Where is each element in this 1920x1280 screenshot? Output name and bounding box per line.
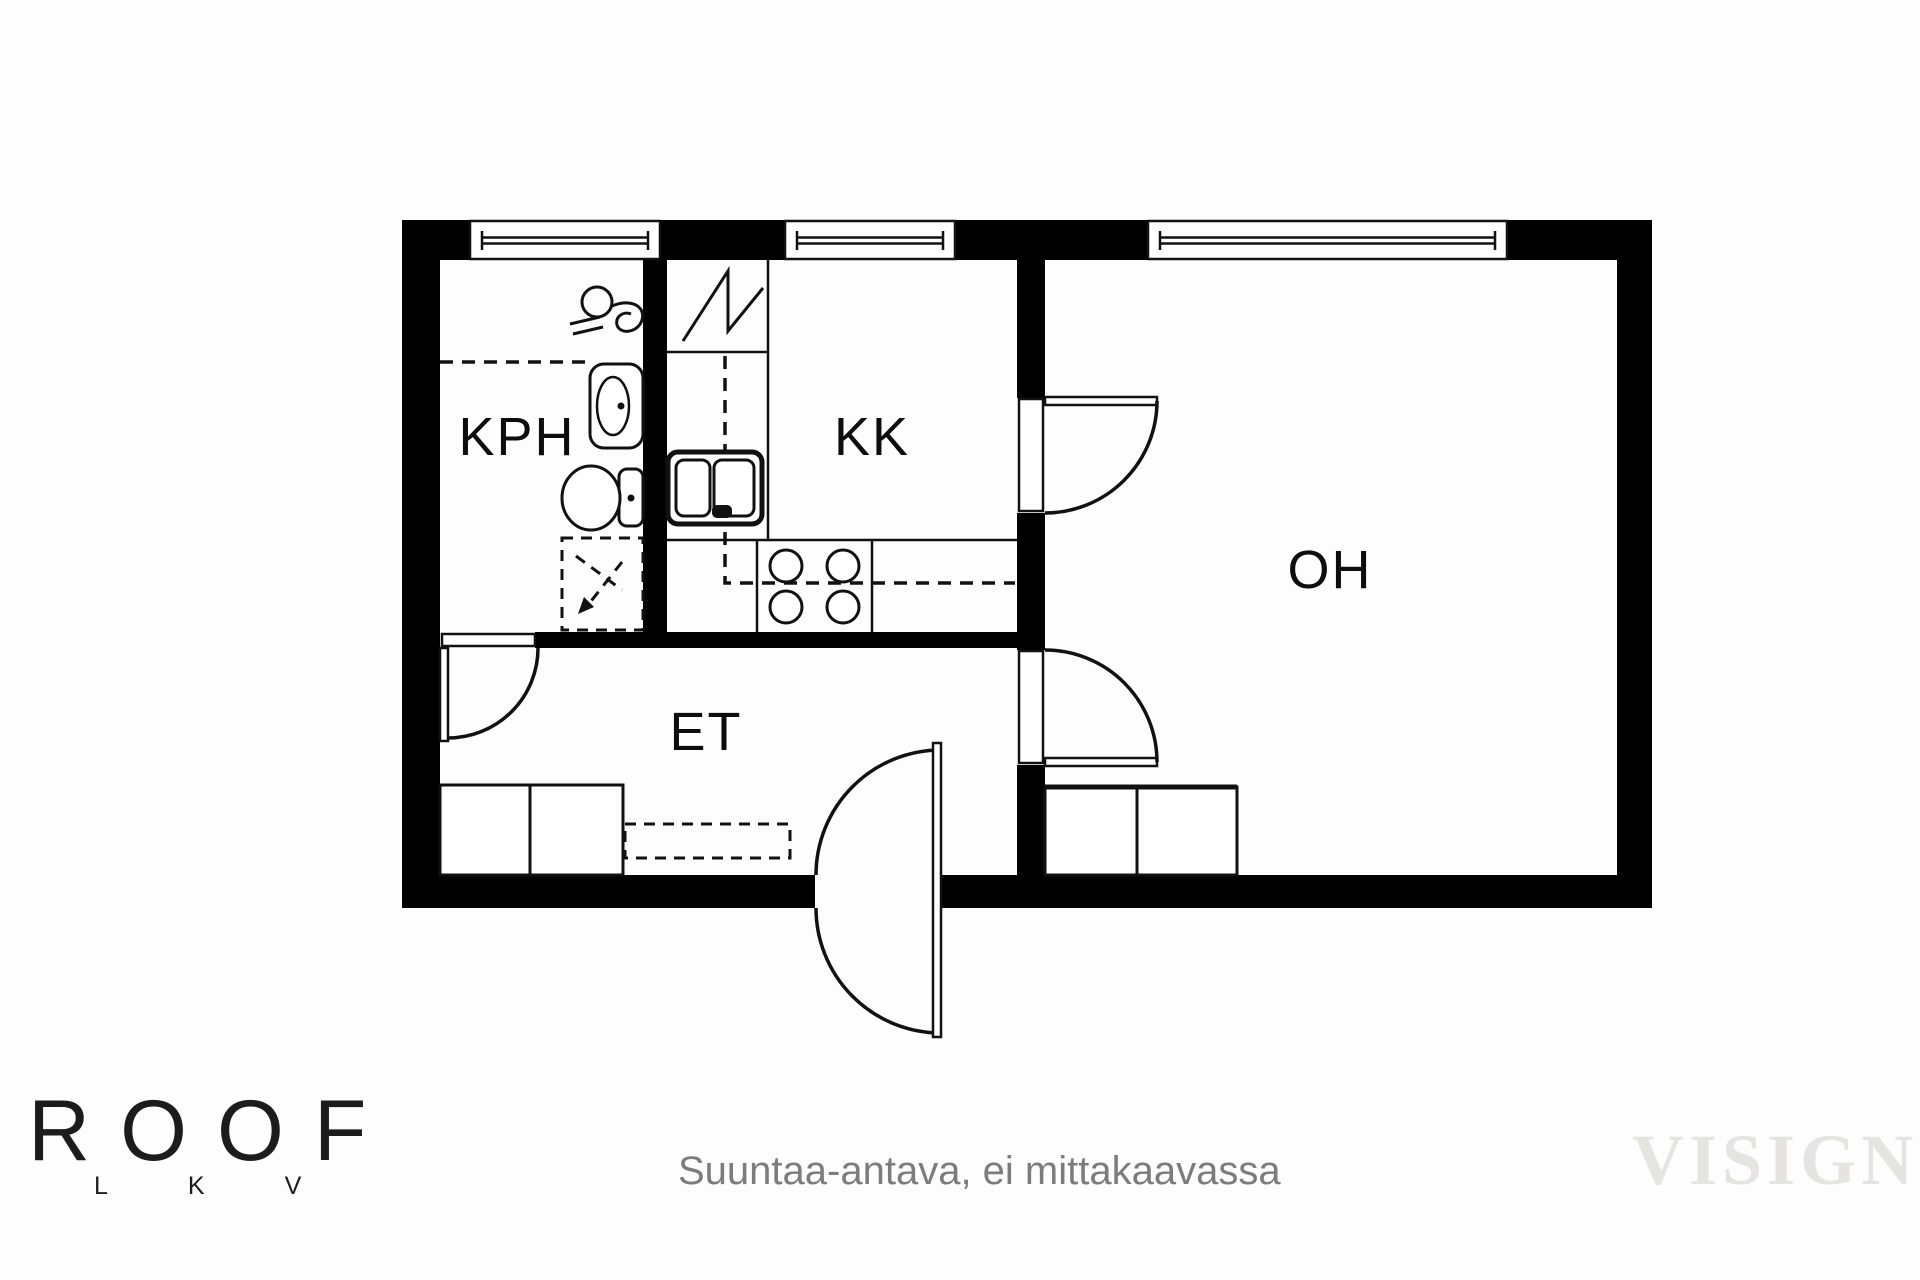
door-kk-oh bbox=[1019, 397, 1157, 513]
roof-logo: ROOF bbox=[28, 1088, 396, 1174]
wall-et-oh-upper bbox=[1017, 260, 1045, 398]
washing-machine-reservation-icon bbox=[562, 538, 643, 630]
wall-et-oh-mid bbox=[1017, 513, 1045, 650]
wall-bottom-left bbox=[402, 875, 815, 908]
door-kph bbox=[440, 634, 538, 741]
refrigerator-icon bbox=[683, 271, 763, 341]
toilet-icon bbox=[562, 466, 643, 530]
floorplan-page: KPH KK OH ET ROOF LKV Suuntaa-antava, ei… bbox=[0, 0, 1920, 1280]
stove-icon bbox=[770, 550, 859, 623]
wall-et-north bbox=[535, 632, 1017, 648]
wardrobe-et-2 bbox=[530, 785, 623, 875]
wardrobe-oh-2 bbox=[1137, 787, 1237, 875]
roof-logo-lkv: LKV bbox=[94, 1174, 381, 1199]
wardrobe-et-1 bbox=[440, 785, 530, 875]
wall-bottom-right bbox=[940, 875, 1652, 908]
door-entrance bbox=[816, 743, 941, 1037]
wall-top-2 bbox=[660, 220, 785, 260]
window-kk bbox=[785, 221, 955, 259]
wardrobe-oh-1 bbox=[1045, 787, 1137, 875]
wall-left bbox=[402, 220, 440, 908]
room-label-oh: OH bbox=[1288, 543, 1373, 597]
room-label-kph: KPH bbox=[458, 410, 575, 464]
wall-et-oh-lower bbox=[1017, 765, 1045, 875]
doors bbox=[440, 397, 1157, 1037]
disclaimer-text: Suuntaa-antava, ei mittakaavassa bbox=[678, 1151, 1281, 1191]
room-label-et: ET bbox=[669, 705, 742, 759]
door-et-oh bbox=[1019, 650, 1157, 766]
shower-icon bbox=[570, 287, 643, 334]
wall-right bbox=[1617, 220, 1652, 908]
visign-watermark: VISIGN bbox=[1632, 1124, 1918, 1196]
wall-kph-kk bbox=[643, 260, 667, 648]
window-oh bbox=[1148, 221, 1507, 259]
furniture bbox=[440, 785, 1237, 875]
room-label-kk: KK bbox=[834, 410, 910, 464]
kitchen-sink-icon bbox=[668, 452, 762, 524]
wall-top-3 bbox=[955, 220, 1148, 260]
window-kph bbox=[470, 221, 660, 259]
washbasin-icon bbox=[590, 364, 643, 448]
coat-rack-dashed bbox=[625, 824, 790, 858]
